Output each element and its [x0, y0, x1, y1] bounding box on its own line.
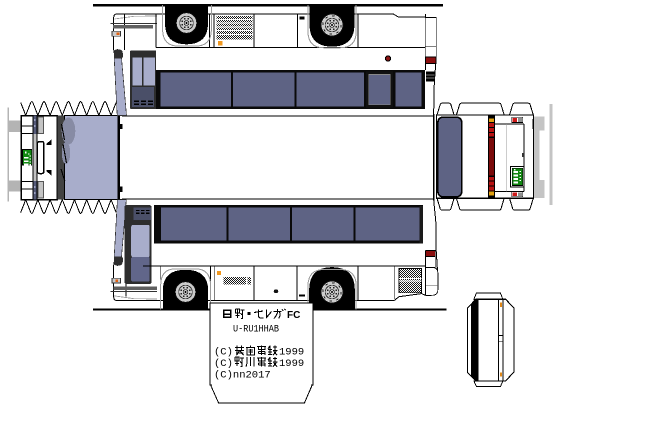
svg-text:(C)nn2017: (C)nn2017 — [214, 370, 271, 382]
svg-text:(C): (C) — [214, 347, 233, 359]
svg-text:1999: 1999 — [279, 347, 304, 359]
svg-text:U-RU1HHAB: U-RU1HHAB — [233, 325, 279, 336]
svg-text:(C): (C) — [214, 358, 233, 370]
svg-text:FC: FC — [287, 310, 300, 321]
svg-text:1999: 1999 — [279, 358, 304, 370]
